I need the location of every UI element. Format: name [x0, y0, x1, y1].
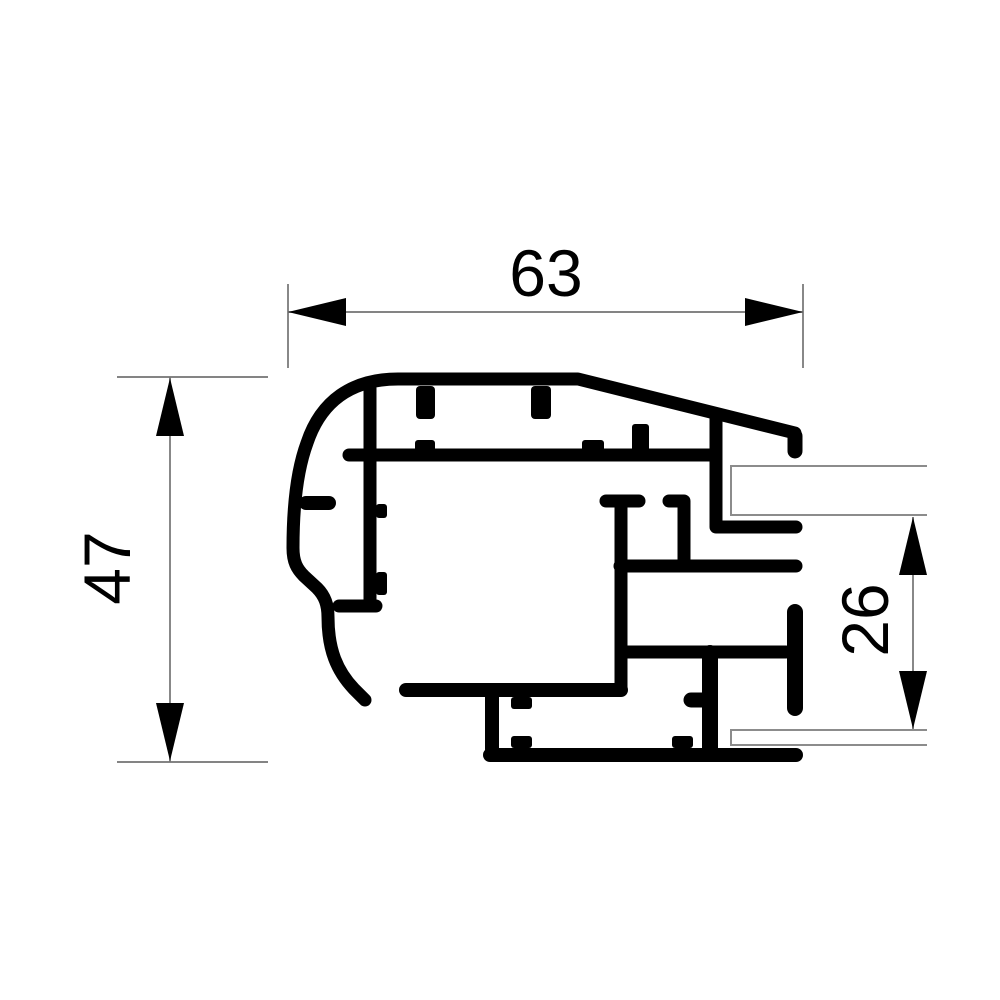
- left-wall-rib-upper: [376, 504, 387, 518]
- gasket-hook: [669, 501, 684, 561]
- dimension-width-63: 63: [288, 236, 803, 368]
- dimension-height-47: 47: [70, 377, 268, 762]
- left-wall-rib-lower: [376, 572, 387, 595]
- dimension-width-label: 63: [509, 236, 582, 310]
- box-rib-bottom-2: [672, 736, 693, 748]
- box-rib-bottom-1: [511, 736, 532, 748]
- inner-wall-tall-rib: [632, 424, 649, 455]
- technical-drawing-canvas: 63 47 26: [0, 0, 1000, 1000]
- top-wall-hanging-tab-2: [531, 386, 551, 419]
- profile-cross-section: [293, 379, 796, 755]
- glass-panel-bottom: [731, 730, 927, 745]
- arrowhead-top: [156, 378, 184, 436]
- inner-wall-rib-1: [415, 440, 435, 455]
- arrowhead-bottom: [156, 703, 184, 761]
- arrowhead-top: [899, 517, 927, 575]
- dimension-glazing-gap-label: 26: [828, 583, 902, 656]
- box-rib-top: [511, 697, 532, 709]
- glass-panel-top: [731, 466, 927, 515]
- arrowhead-right: [745, 298, 803, 326]
- dimension-height-label: 47: [70, 531, 144, 604]
- dimension-glazing-gap-26: 26: [828, 517, 927, 729]
- arrowhead-bottom: [899, 671, 927, 729]
- technical-drawing-page: 63 47 26: [0, 0, 1000, 1000]
- arrowhead-left: [288, 298, 346, 326]
- inner-wall-rib-2: [582, 440, 604, 455]
- top-wall-hanging-tab-1: [416, 386, 435, 419]
